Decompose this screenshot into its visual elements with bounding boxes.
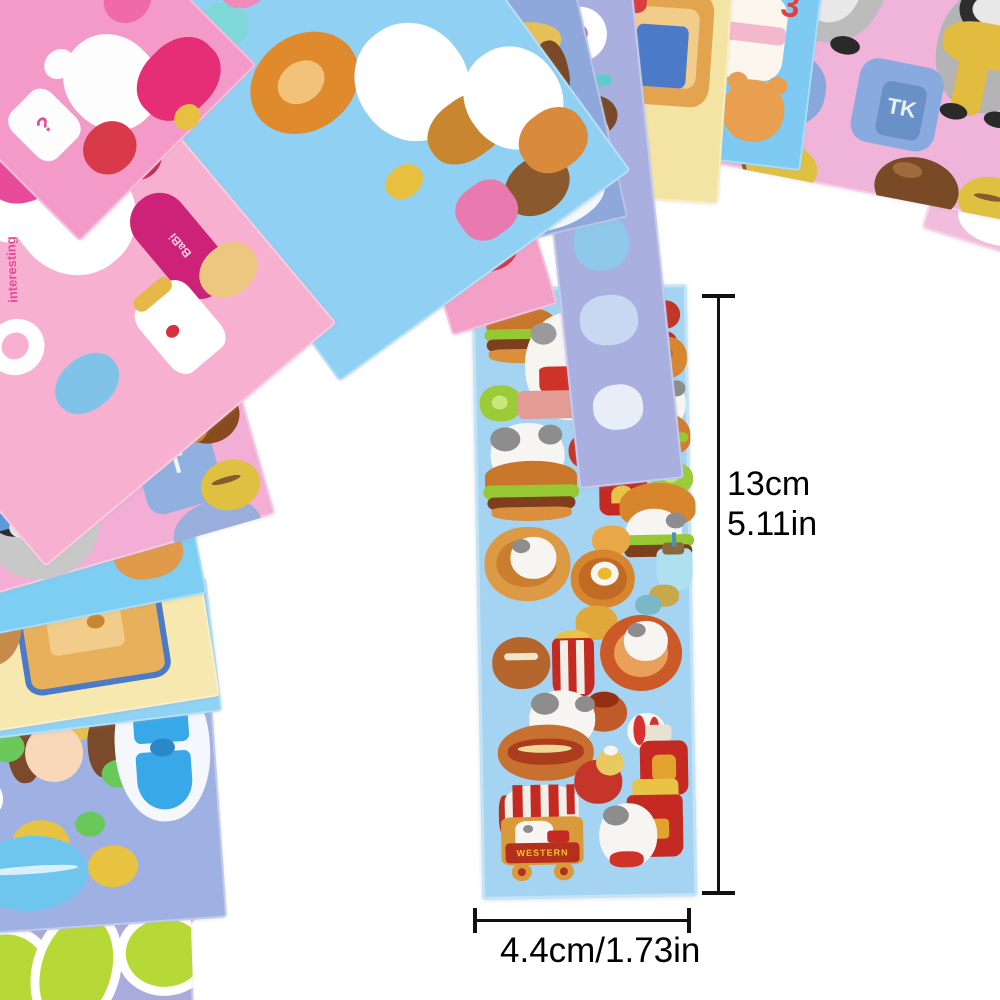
width-dimension-cap-left xyxy=(473,908,477,933)
sticker-shape xyxy=(87,844,140,889)
height-dimension-line xyxy=(717,296,720,893)
height-labels: 13cm 5.11in xyxy=(727,464,817,544)
sticker-shape xyxy=(0,778,4,821)
height-dimension-cap-bottom xyxy=(702,891,735,895)
sticker-shape xyxy=(74,811,106,838)
western-cart-label: WESTERN xyxy=(505,842,579,863)
sticker-shape xyxy=(44,341,131,426)
product-photo: ?BaBiinteresting★3TK8Y28TE WESTERN 13cm … xyxy=(0,0,1000,1000)
sticker-shape xyxy=(379,157,430,206)
height-dimension-cap-top xyxy=(702,294,735,298)
width-dimension-cap-right xyxy=(687,908,691,933)
height-label-in: 5.11in xyxy=(727,504,817,544)
width-label: 4.4cm/1.73in xyxy=(500,931,700,971)
sticker-shape xyxy=(610,851,644,868)
sticker-shape xyxy=(578,292,641,348)
sticker-shape xyxy=(94,0,161,33)
sticker-shape xyxy=(591,382,645,432)
sticker-shape xyxy=(829,34,862,57)
height-label-cm: 13cm xyxy=(727,464,817,504)
width-dimension-line xyxy=(474,919,690,922)
